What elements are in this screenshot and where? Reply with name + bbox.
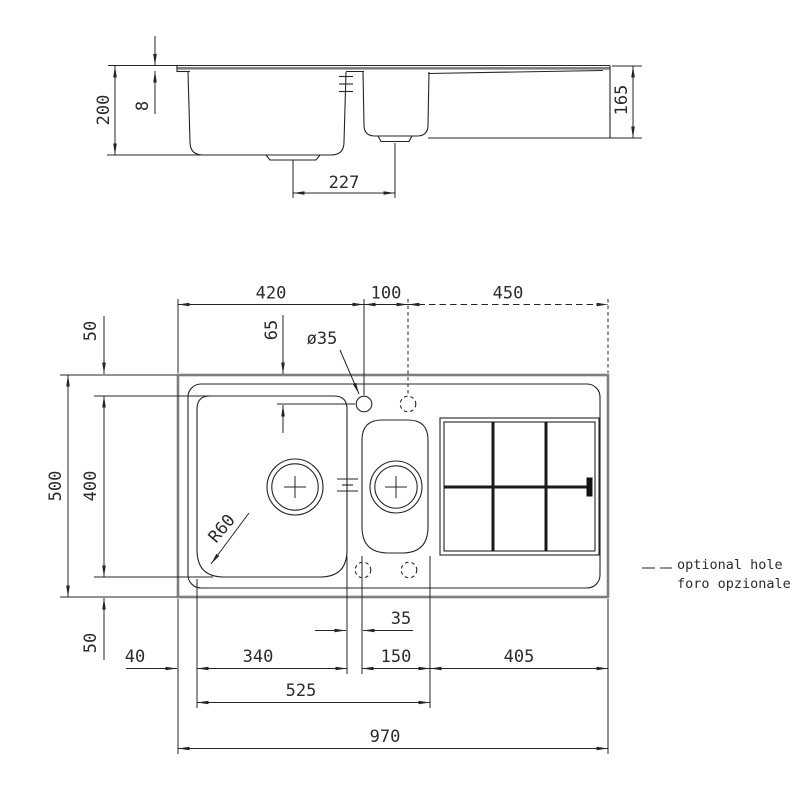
section-small-bowl <box>363 72 429 136</box>
section-main-drain-stub <box>266 155 320 160</box>
dim-label-405: 405 <box>504 647 535 667</box>
dim-label-525: 525 <box>286 681 317 701</box>
hole-diameter-label: ø35 <box>307 329 338 349</box>
legend-text-it: foro opzionale <box>677 576 791 592</box>
dim-label-227: 227 <box>329 173 360 193</box>
dim-label-40: 40 <box>125 647 145 667</box>
dim-label-450: 450 <box>493 284 524 304</box>
sink-technical-drawing: 200 8 165 227 <box>0 0 798 799</box>
optional-hole-bottom-left <box>355 562 371 578</box>
dim-label-50-bottom: 50 <box>81 633 101 653</box>
grid-drain-mark <box>587 478 593 497</box>
hole-leader-line <box>340 350 359 394</box>
plan-small-drain <box>370 461 422 513</box>
section-small-drain-stub <box>378 136 412 142</box>
radius-label: R60 <box>205 511 240 547</box>
drainer-grid <box>440 418 599 555</box>
optional-hole-bottom-right <box>401 562 417 578</box>
dim-label-150: 150 <box>381 647 412 667</box>
dim-label-500: 500 <box>46 471 66 502</box>
section-drainer-slope <box>428 71 603 74</box>
dim-label-165: 165 <box>612 85 632 116</box>
dim-label-65: 65 <box>262 320 282 340</box>
dim-label-420: 420 <box>256 284 287 304</box>
technical-drawing-page: 200 8 165 227 <box>0 0 798 799</box>
plan-view <box>178 375 608 597</box>
plan-dimensions: 420 100 450 65 ø35 500 50 400 50 R60 <box>46 284 608 755</box>
dim-label-200: 200 <box>94 95 114 126</box>
section-main-bowl <box>188 72 346 155</box>
dim-label-970: 970 <box>370 727 401 747</box>
section-view: 200 8 165 227 <box>94 36 642 198</box>
dim-label-400: 400 <box>81 471 101 502</box>
legend-text-en: optional hole <box>677 557 783 573</box>
dim-label-100: 100 <box>371 284 402 304</box>
dim-label-50-top: 50 <box>81 321 101 341</box>
legend: optional hole foro opzionale <box>642 557 791 592</box>
dim-label-35: 35 <box>391 609 411 629</box>
dim-label-340: 340 <box>243 647 274 667</box>
plan-main-drain <box>267 459 323 515</box>
tap-hole <box>356 396 372 412</box>
dim-label-8: 8 <box>133 101 153 111</box>
optional-hole-top <box>400 396 416 412</box>
